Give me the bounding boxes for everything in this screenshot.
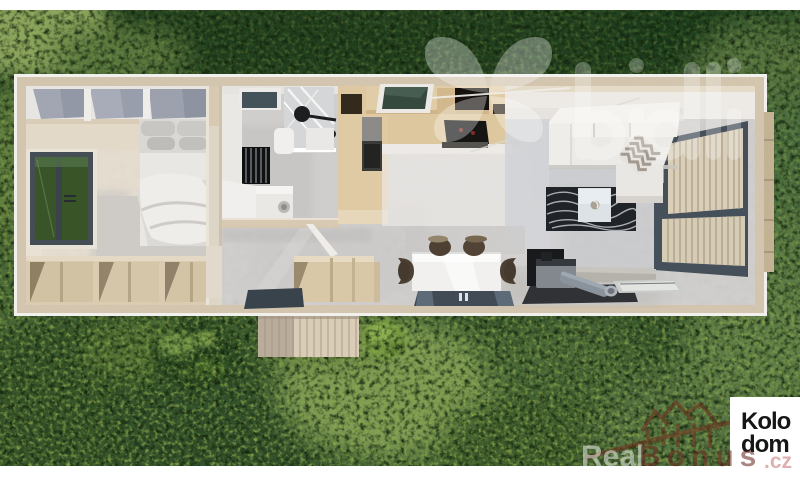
svg-text:Real: Real — [581, 440, 644, 473]
svg-text:Bonus: Bonus — [639, 440, 762, 473]
svg-text:.cz: .cz — [764, 450, 792, 473]
